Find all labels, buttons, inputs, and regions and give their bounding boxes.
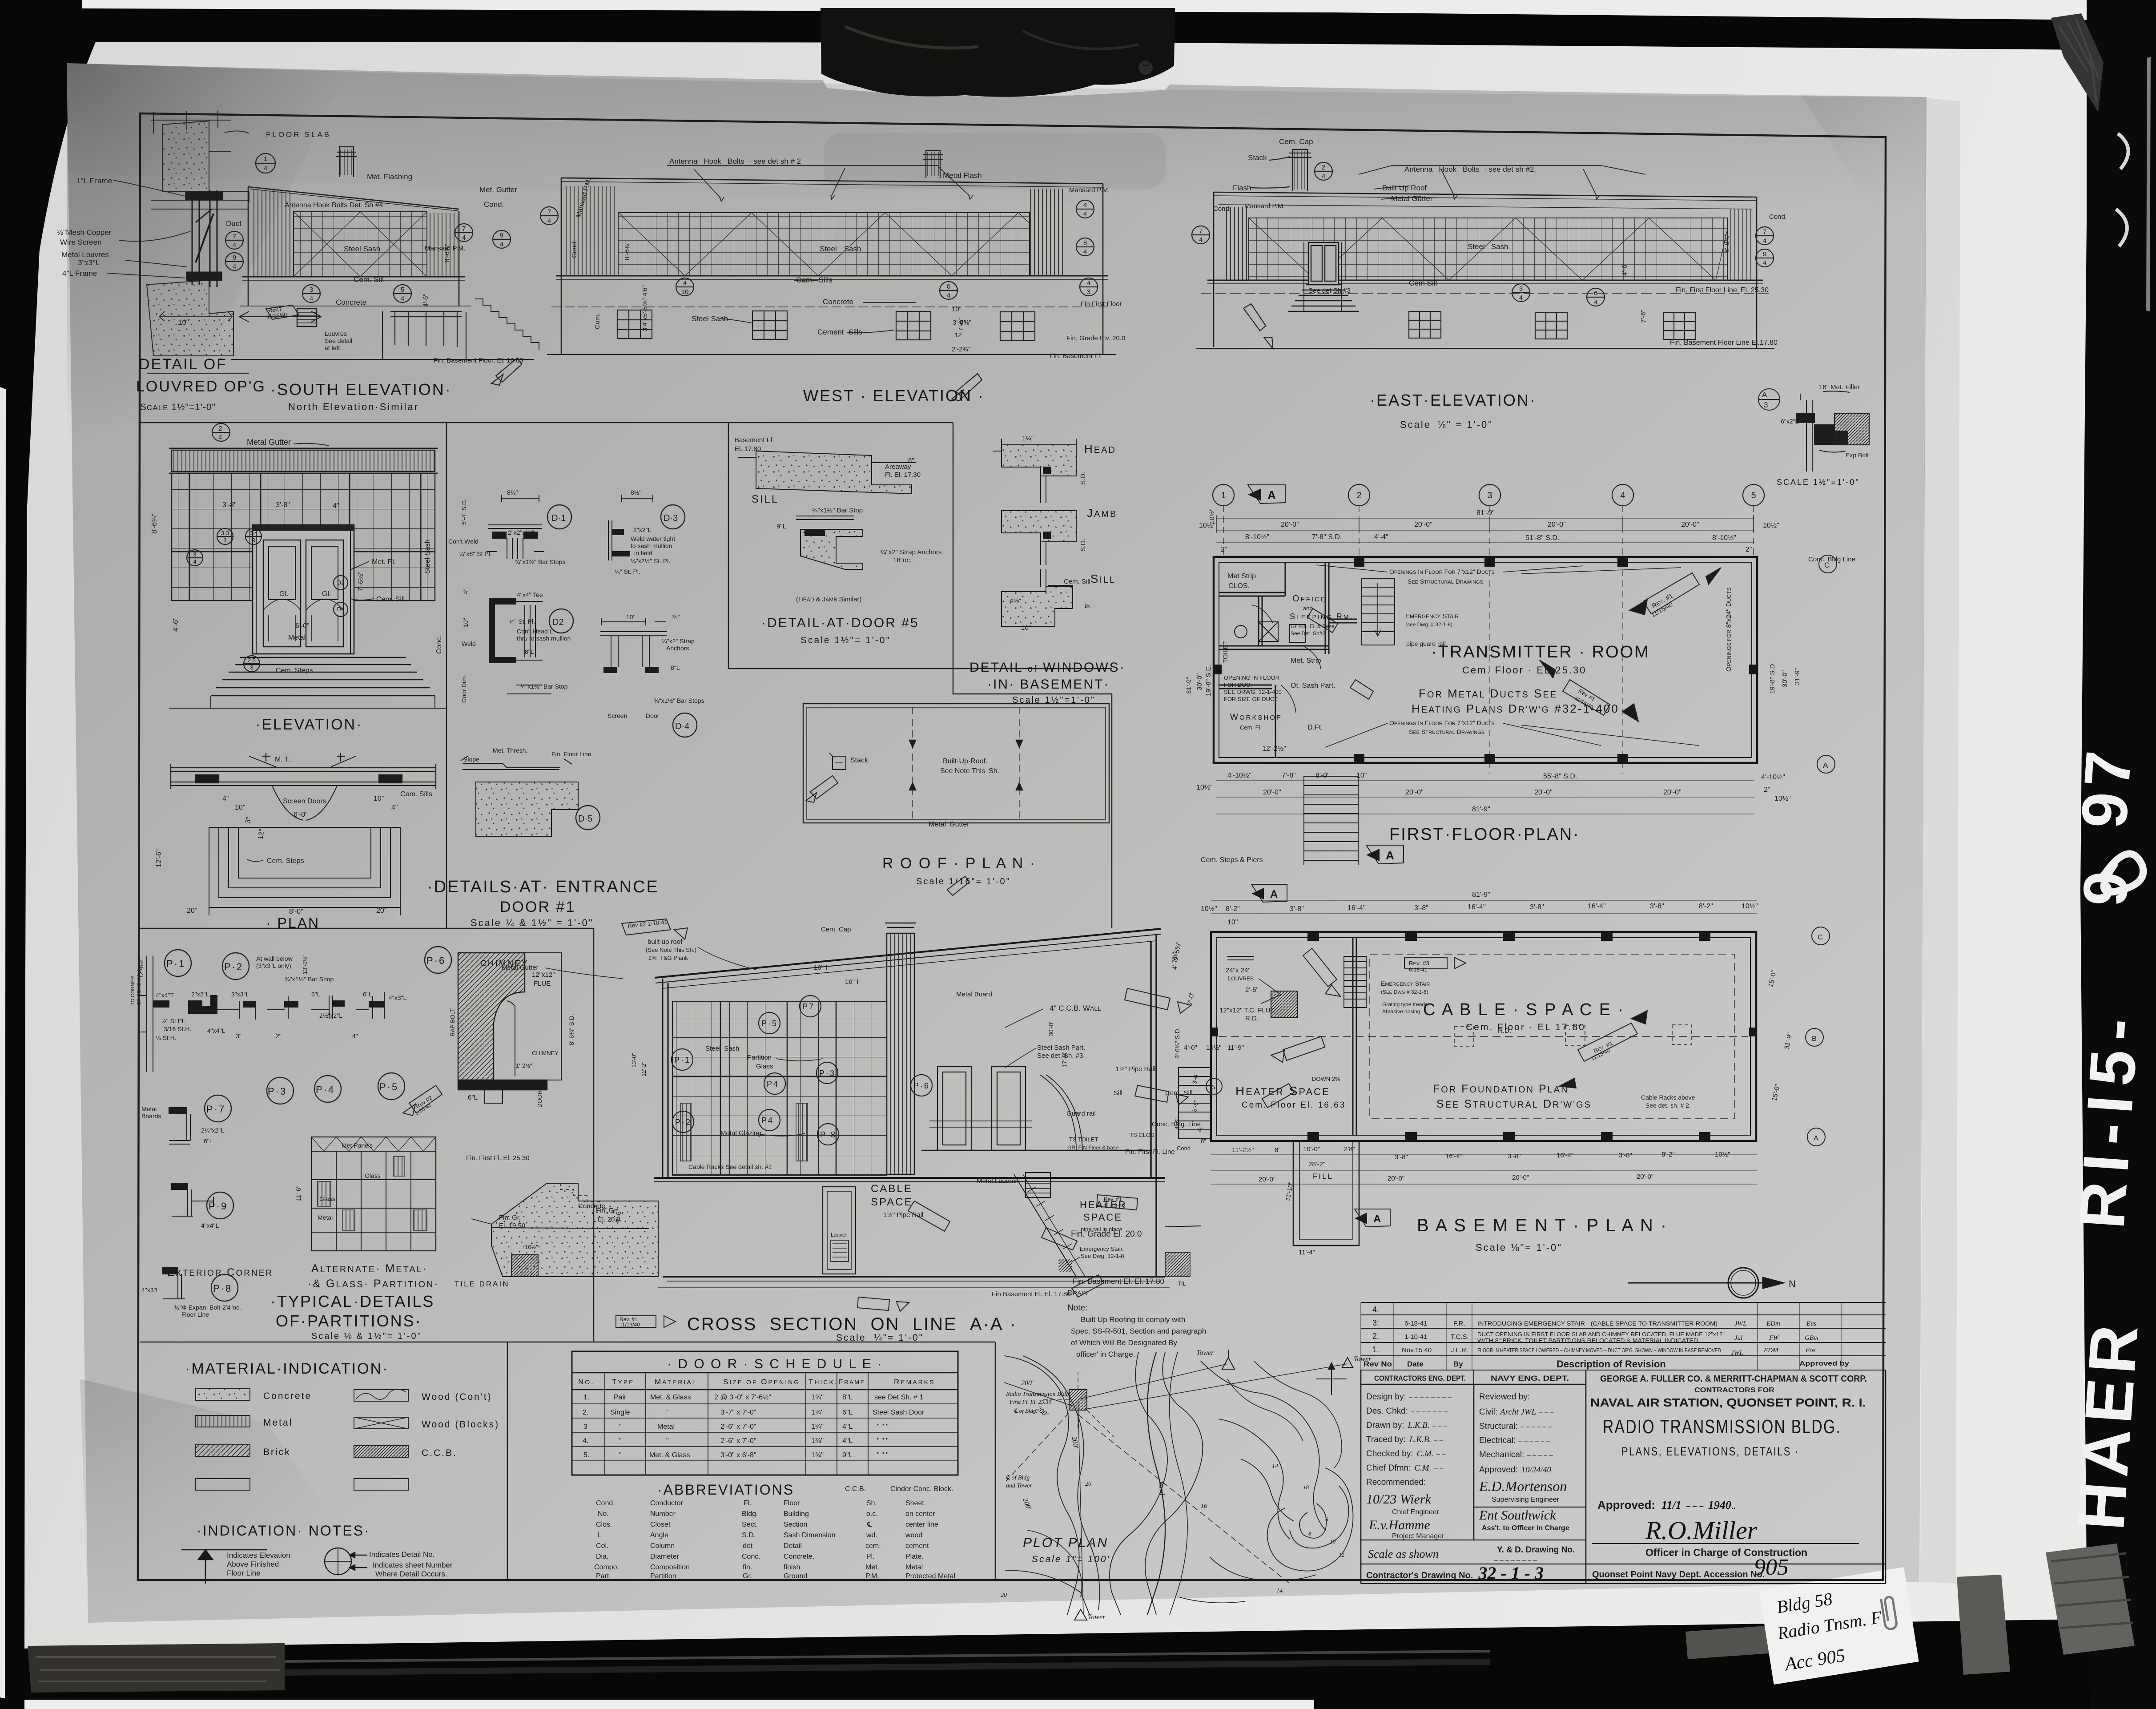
svg-text:4": 4" — [333, 502, 339, 510]
svg-text:det: det — [743, 1542, 753, 1550]
svg-text:3.4: 3.4 — [249, 530, 257, 536]
svg-text:J.L.R.: J.L.R. — [1451, 1346, 1468, 1354]
svg-text:Indicates Detail No.: Indicates Detail No. — [369, 1550, 434, 1559]
svg-text:200': 200' — [1021, 1379, 1034, 1387]
svg-text:P·1: P·1 — [674, 1056, 691, 1064]
svg-text:Metal: Metal — [263, 1418, 293, 1428]
svg-text:Cem. Steps & Piers: Cem. Steps & Piers — [1201, 856, 1263, 864]
svg-text:Cable Racks above: Cable Racks above — [1641, 1094, 1695, 1101]
svg-text:Design by:– – – – – – – –: Design by:– – – – – – – – — [1366, 1392, 1452, 1402]
svg-text:19'-8" S.D.: 19'-8" S.D. — [1769, 662, 1776, 694]
svg-text:D·3: D·3 — [664, 513, 678, 523]
svg-text:El. 17.80: El. 17.80 — [735, 445, 761, 453]
svg-text:Cable Racks See detail sh. #2: Cable Racks See detail sh. #2 — [688, 1163, 772, 1170]
svg-text:Recommended:: Recommended: — [1366, 1478, 1426, 1487]
svg-text:Fin. Basement Floor Line El.17: Fin. Basement Floor Line El.17.80 — [1670, 339, 1778, 347]
svg-text:3'-0" x 6'-8": 3'-0" x 6'-8" — [720, 1451, 756, 1459]
svg-text:D·5: D·5 — [578, 814, 592, 824]
svg-text:¼" St. Pl.: ¼" St. Pl. — [615, 568, 640, 575]
svg-text:TS TOILET: TS TOILET — [1069, 1136, 1098, 1143]
svg-text:24"x 24": 24"x 24" — [1226, 967, 1251, 974]
svg-text:8'-2": 8'-2" — [1226, 905, 1240, 913]
svg-text:CONTRACTORS FOR: CONTRACTORS FOR — [1694, 1387, 1774, 1394]
svg-text:12"x12": 12"x12" — [532, 971, 555, 979]
svg-text:2": 2" — [1764, 786, 1770, 794]
svg-text:12: 12 — [954, 331, 962, 339]
svg-text:GBm: GBm — [1805, 1334, 1818, 1342]
svg-text:S.D.: S.D. — [1079, 472, 1087, 485]
svg-text:Fin. First Floor LineEl. 25.30: Fin. First Floor LineEl. 25.30 — [1676, 286, 1769, 294]
svg-text:" " ": " " " — [877, 1451, 889, 1459]
svg-text:Wood (Con't): Wood (Con't) — [422, 1392, 492, 1402]
svg-text:GEORGE A. FULLER CO. & MERRITT: GEORGE A. FULLER CO. & MERRITT-CHAPMAN &… — [1600, 1374, 1867, 1384]
svg-text:C.C.B.: C.C.B. — [422, 1448, 457, 1458]
svg-text:Eos: Eos — [1805, 1347, 1816, 1354]
svg-text:4": 4" — [222, 795, 229, 802]
svg-text:P·4: P·4 — [316, 1084, 335, 1095]
svg-text:Met Strip: Met Strip — [1227, 572, 1256, 580]
svg-text:11-13-40: 11-13-40 — [1104, 1202, 1125, 1209]
svg-text:2.: 2. — [1372, 1332, 1379, 1341]
svg-text:Cem. Cap: Cem. Cap — [1279, 137, 1313, 146]
svg-text:16" Met. Filler: 16" Met. Filler — [1819, 383, 1860, 391]
svg-text:First Fl. El. 25.30: First Fl. El. 25.30 — [1009, 1399, 1051, 1405]
svg-text:Abrasive nosing: Abrasive nosing — [1382, 1008, 1420, 1015]
svg-text:4": 4" — [352, 1032, 358, 1040]
svg-text:3'-8": 3'-8" — [1414, 904, 1428, 912]
svg-text:4: 4 — [1763, 237, 1766, 245]
svg-text:wood: wood — [905, 1532, 922, 1539]
svg-text:Metal: Metal — [288, 634, 306, 641]
svg-text:to sash mullion: to sash mullion — [631, 542, 672, 549]
svg-text:El. 19.50: El. 19.50 — [499, 1222, 525, 1229]
svg-text:P·7: P·7 — [206, 1104, 225, 1115]
svg-text:6": 6" — [908, 457, 914, 464]
svg-text:Gr. Fin. El. & Base: Gr. Fin. El. & Base — [1291, 623, 1335, 629]
svg-text:D2: D2 — [552, 617, 564, 627]
svg-text:4'-0": 4'-0" — [1184, 1044, 1197, 1052]
svg-text:℄: ℄ — [867, 1521, 872, 1528]
svg-text:thru to sash mullion: thru to sash mullion — [517, 635, 571, 642]
svg-text:Built·Up·Roof.: Built·Up·Roof. — [943, 758, 987, 765]
svg-text:4: 4 — [947, 292, 950, 299]
svg-text:1¾": 1¾" — [811, 1437, 824, 1445]
svg-text:¼"x8" St Pl.: ¼"x8" St Pl. — [459, 550, 492, 557]
svg-text:S.D.: S.D. — [1079, 539, 1087, 552]
svg-text:REMARKS: REMARKS — [894, 1378, 935, 1386]
svg-text:8"L: 8"L — [842, 1394, 853, 1401]
svg-text:Cem. Steps: Cem. Steps — [276, 667, 313, 674]
svg-text:19'-8" S.E.: 19'-8" S.E. — [1205, 665, 1212, 696]
svg-text:Supervising Engineer: Supervising Engineer — [1492, 1496, 1560, 1503]
svg-text:20: 20 — [1001, 1592, 1007, 1599]
svg-text:(3"x3"L only): (3"x3"L only) — [256, 962, 291, 969]
svg-text:Pl.: Pl. — [866, 1553, 875, 1560]
svg-text:Metal Board: Metal Board — [956, 991, 992, 998]
svg-text:3"x3"L: 3"x3"L — [78, 258, 100, 267]
svg-text:Glass: Glass — [756, 1063, 773, 1070]
svg-text:Con't Head L: Con't Head L — [517, 628, 553, 635]
svg-text:o.c.: o.c. — [866, 1510, 878, 1518]
svg-text:4"L: 4"L — [842, 1423, 853, 1431]
svg-text:Metal Glazing: Metal Glazing — [720, 1129, 761, 1137]
svg-text:Metal Louvres: Metal Louvres — [61, 250, 109, 259]
svg-text:2": 2" — [276, 1032, 282, 1040]
svg-text:· PLAN: · PLAN — [266, 915, 320, 931]
svg-text:16'-4": 16'-4" — [1445, 1153, 1462, 1160]
svg-text:8: 8 — [1083, 239, 1087, 247]
svg-text:OFFICE: OFFICE — [1292, 594, 1327, 604]
svg-text:Met. Pl.: Met. Pl. — [372, 558, 396, 566]
svg-text:FLOOR IN HEATER SPACE LOWERED: FLOOR IN HEATER SPACE LOWERED – CHIMNEY … — [1477, 1347, 1721, 1354]
svg-text:3: 3 — [1764, 401, 1768, 409]
svg-text:P·6: P·6 — [426, 955, 446, 966]
svg-text:12'-2": 12'-2" — [640, 1061, 647, 1076]
svg-text:officer' in Charge.: officer' in Charge. — [1076, 1350, 1135, 1358]
svg-text:· D O O R · S C H E D U L E ·: · D O O R · S C H E D U L E · — [667, 1357, 883, 1371]
svg-text:P·9: P·9 — [209, 1201, 228, 1212]
svg-text:Diameter: Diameter — [650, 1553, 680, 1560]
svg-text:20'-0": 20'-0" — [1681, 521, 1699, 528]
svg-text:Guard rail: Guard rail — [1066, 1110, 1096, 1117]
svg-text:¾"x1½" Bar Stops: ¾"x1½" Bar Stops — [654, 697, 704, 704]
svg-text:cement: cement — [905, 1542, 929, 1550]
svg-text:7'-6": 7'-6" — [957, 318, 965, 331]
svg-text:Protected Metal: Protected Metal — [905, 1572, 955, 1580]
svg-text:P·3: P·3 — [819, 1069, 836, 1078]
svg-text:¾"x1½" Bar Stop: ¾"x1½" Bar Stop — [520, 683, 568, 690]
svg-text:2"x2"x¼"L: 2"x2"x¼"L — [508, 529, 536, 536]
svg-text:Cem. Steps: Cem. Steps — [267, 857, 304, 865]
svg-text:¾"x1⅜" Bar Stops: ¾"x1⅜" Bar Stops — [515, 558, 565, 565]
svg-text:3: 3 — [1519, 285, 1523, 293]
svg-text:4: 4 — [1083, 210, 1087, 218]
svg-text:28'-2": 28'-2" — [1308, 1161, 1325, 1168]
svg-text:2'-6" x 7'-0": 2'-6" x 7'-0" — [720, 1423, 756, 1431]
svg-text:Sh.: Sh. — [866, 1499, 877, 1507]
svg-text:Number: Number — [650, 1510, 676, 1518]
svg-text:Des. Chkd:– – – – – – –: Des. Chkd:– – – – – – – — [1366, 1407, 1448, 1416]
svg-text:No.: No. — [598, 1510, 609, 1518]
svg-text:NAVAL AIR STATION, QUONSET POI: NAVAL AIR STATION, QUONSET POINT, R. I. — [1590, 1396, 1866, 1409]
svg-text:Door Dim.: Door Dim. — [460, 675, 467, 703]
svg-text:20'-0": 20'-0" — [1534, 789, 1553, 796]
svg-text:4"x4"T: 4"x4"T — [156, 992, 174, 999]
svg-text:1.: 1. — [1372, 1345, 1379, 1354]
svg-text:TO CORNER: TO CORNER — [130, 976, 136, 1005]
svg-text:2: 2 — [1322, 164, 1325, 171]
svg-text:INTRODUCING EMERGENCY STAIR -: INTRODUCING EMERGENCY STAIR - (CABLE SPA… — [1477, 1320, 1718, 1327]
svg-text:Antenna Hook Bolts Det. Sh #4: Antenna Hook Bolts Det. Sh #4 — [285, 202, 383, 209]
svg-text:4: 4 — [218, 434, 222, 441]
svg-text:4: 4 — [547, 217, 551, 225]
svg-text:4: 4 — [193, 558, 196, 565]
svg-text:Tower: Tower — [1196, 1349, 1214, 1357]
svg-text:RADIO TRANSMISSION BLDG.: RADIO TRANSMISSION BLDG. — [1603, 1416, 1841, 1438]
svg-text:3'-8": 3'-8" — [276, 501, 290, 509]
svg-text:3'-8": 3'-8" — [1650, 903, 1664, 910]
svg-text:9: 9 — [233, 254, 236, 262]
svg-text:Metal Gutter: Metal Gutter — [247, 438, 291, 447]
svg-text:10/23 Wierk: 10/23 Wierk — [1366, 1492, 1431, 1507]
svg-text:Indicates sheet Number: Indicates sheet Number — [373, 1561, 453, 1569]
svg-text:DETAIL OF: DETAIL OF — [139, 356, 227, 373]
svg-text:Sect.: Sect. — [742, 1521, 758, 1528]
svg-text:Fin. Basement El. El. 17.80: Fin. Basement El. El. 17.80 — [1073, 1277, 1164, 1286]
svg-text:12'-6": 12'-6" — [155, 849, 163, 867]
svg-text:DOOR: DOOR — [536, 1090, 543, 1108]
svg-text:℄ of Bldg.: ℄ of Bldg. — [1014, 1407, 1038, 1414]
svg-text:7'-6½": 7'-6½" — [357, 572, 365, 592]
svg-text:": " — [619, 1437, 622, 1445]
svg-text:Met. & Glass: Met. & Glass — [650, 1394, 691, 1401]
svg-text:Description of Revision: Description of Revision — [1557, 1358, 1666, 1370]
svg-text:20'-0": 20'-0" — [1512, 1174, 1529, 1181]
svg-text:": " — [619, 1423, 622, 1431]
svg-text:M. T.: M. T. — [275, 756, 290, 763]
svg-text:Cem Sill: Cem Sill — [1409, 279, 1437, 287]
svg-text:·SOUTH ELEVATION·: ·SOUTH ELEVATION· — [270, 380, 452, 399]
svg-text:R.O.Miller: R.O.Miller — [1645, 1516, 1758, 1545]
svg-text:12"x12" T.C. FLUE: 12"x12" T.C. FLUE — [1219, 1007, 1275, 1014]
svg-text:Cem. Floor El. 16.63: Cem. Floor El. 16.63 — [1242, 1100, 1346, 1110]
svg-text:6"L: 6"L — [363, 991, 372, 998]
svg-text:Cond.: Cond. — [571, 240, 578, 258]
svg-text:JWL: JWL — [1734, 1320, 1747, 1327]
svg-text:3/16 St.H.: 3/16 St.H. — [164, 1025, 191, 1032]
svg-text:3": 3" — [244, 816, 253, 824]
svg-text:Flash: Flash — [1233, 184, 1251, 192]
svg-text:TILE DRAIN: TILE DRAIN — [455, 1280, 510, 1288]
svg-text:Conc. Bldg. Line: Conc. Bldg. Line — [1152, 1121, 1201, 1128]
svg-text:Sill: Sill — [1114, 1089, 1122, 1097]
svg-text:10": 10" — [235, 804, 245, 811]
svg-text:EMERGENCY STAIR: EMERGENCY STAIR — [1405, 613, 1459, 620]
svg-text:A: A — [1386, 849, 1396, 862]
svg-text:Plate.: Plate. — [905, 1553, 924, 1560]
svg-text:Cem. Sill: Cem. Sill — [376, 596, 405, 603]
svg-text:Metal Gutter: Metal Gutter — [1391, 194, 1433, 203]
svg-text:Con't Weld: Con't Weld — [448, 538, 479, 545]
svg-text:Basement Fl.: Basement Fl. — [735, 436, 774, 444]
svg-text:·IN· BASEMENT·: ·IN· BASEMENT· — [987, 677, 1110, 692]
svg-text:11'-2½": 11'-2½" — [1232, 1146, 1254, 1154]
svg-text:DOOR #1: DOOR #1 — [500, 899, 575, 915]
svg-text:2"x2"L: 2"x2"L — [191, 991, 209, 998]
svg-text:Scale ⅛ & 1½"= 1'-0": Scale ⅛ & 1½"= 1'-0" — [311, 1331, 422, 1341]
svg-text:D.Ft.: D.Ft. — [1307, 724, 1323, 731]
svg-text:MATERIAL: MATERIAL — [655, 1378, 697, 1386]
svg-text:·& GLASS· PARTITION·: ·& GLASS· PARTITION· — [308, 1278, 439, 1290]
svg-text:1¾": 1¾" — [811, 1409, 824, 1416]
svg-text:Wire Screen: Wire Screen — [60, 238, 102, 246]
svg-text:14: 14 — [1272, 1463, 1278, 1470]
svg-text:2"x2"L: 2"x2"L — [633, 526, 652, 533]
svg-text:SCALE 1½"=1'-0": SCALE 1½"=1'-0" — [140, 402, 216, 412]
svg-text:16'-4": 16'-4" — [1468, 903, 1486, 911]
svg-text:": " — [666, 1437, 669, 1445]
svg-text:10": 10" — [1021, 624, 1031, 632]
svg-text:4: 4 — [683, 279, 687, 287]
svg-text:4"L: 4"L — [842, 1437, 853, 1445]
svg-text:C: C — [1824, 561, 1830, 569]
svg-text:Reviewed by:: Reviewed by: — [1479, 1392, 1530, 1402]
svg-text:Concrete: Concrete — [578, 1202, 605, 1210]
svg-text:20'-0": 20'-0" — [1281, 521, 1299, 528]
svg-text:10½": 10½" — [1201, 905, 1217, 913]
svg-text:3'-8": 3'-8" — [222, 501, 237, 509]
svg-text:built up roof: built up roof — [648, 938, 683, 946]
svg-text:4": 4" — [462, 588, 469, 594]
svg-text:4'-6": 4'-6" — [172, 617, 180, 632]
svg-text:Floor Line: Floor Line — [227, 1569, 261, 1577]
svg-text:¼"x2" Strap Anchors: ¼"x2" Strap Anchors — [881, 548, 941, 556]
svg-text:Gl.: Gl. — [279, 590, 288, 598]
svg-text:HAER: HAER — [2063, 1318, 2152, 1533]
svg-text:7'-8" S.D.: 7'-8" S.D. — [1312, 533, 1342, 541]
svg-text:Concrete: Concrete — [823, 298, 853, 306]
svg-text:20'-0": 20'-0" — [1663, 789, 1681, 796]
svg-text:20'-0": 20'-0" — [1405, 789, 1424, 796]
svg-text:8'-10½": 8'-10½" — [1712, 534, 1736, 542]
svg-text:4'-6": 4'-6" — [1621, 262, 1629, 276]
svg-text:10½": 10½" — [1196, 784, 1213, 791]
svg-text:Compo.: Compo. — [594, 1564, 619, 1571]
svg-text:B: B — [1812, 1035, 1817, 1043]
svg-text:Approved:10/24/40: Approved:10/24/40 — [1479, 1465, 1552, 1475]
svg-text:Screen Doors: Screen Doors — [283, 798, 326, 805]
svg-text:Col.: Col. — [596, 1542, 608, 1550]
svg-text:Scale ⅛"= 1'-0": Scale ⅛"= 1'-0" — [1476, 1242, 1562, 1253]
svg-text:Conc.: Conc. — [742, 1553, 760, 1560]
svg-text:Steel Sash: Steel Sash — [424, 540, 431, 574]
svg-text:FLOORSLAB: FLOORSLAB — [266, 130, 329, 139]
svg-text:See detail: See detail — [325, 337, 352, 344]
svg-text:16'-4": 16'-4" — [1588, 903, 1606, 910]
svg-text:4: 4 — [1594, 298, 1597, 306]
svg-text:Weld water tight: Weld water tight — [631, 535, 675, 542]
svg-text:7: 7 — [547, 208, 551, 216]
svg-text:P·5: P·5 — [761, 1019, 778, 1028]
svg-text:8½": 8½" — [507, 489, 518, 496]
svg-text:Built Up Roofing to comply wit: Built Up Roofing to comply with — [1081, 1315, 1185, 1324]
svg-text:6"x2"L: 6"x2"L — [1781, 418, 1799, 425]
svg-text:LOUVRES: LOUVRES — [1227, 975, 1254, 982]
svg-text:": " — [619, 1451, 622, 1459]
svg-text:See Dwg. 32-1-8: See Dwg. 32-1-8 — [1081, 1253, 1124, 1259]
svg-text:P·2: P·2 — [224, 961, 243, 972]
svg-text:2'-2¾": 2'-2¾" — [952, 346, 970, 353]
svg-text:Anchors: Anchors — [666, 645, 689, 652]
svg-text:DOWN 2%: DOWN 2% — [1312, 1076, 1340, 1082]
svg-text:10": 10" — [462, 618, 469, 627]
svg-text:Scale ¼ & 1½" = 1'-0": Scale ¼ & 1½" = 1'-0" — [471, 917, 594, 928]
svg-text:17'-8": 17'-8" — [1061, 1052, 1068, 1068]
svg-text:16'-4": 16'-4" — [1347, 904, 1366, 912]
svg-text:AntennaHookBolts· see det sh #: AntennaHookBolts· see det sh #2. — [1404, 165, 1536, 173]
svg-text:See Note ThisSh.: See Note ThisSh. — [940, 767, 999, 775]
svg-text:Met. Strip: Met. Strip — [1291, 657, 1321, 665]
svg-text:D4: D4 — [337, 606, 345, 613]
svg-text:30'-0": 30'-0" — [1196, 673, 1203, 690]
svg-text:·TRANSMITTER · ROOM: ·TRANSMITTER · ROOM — [1431, 643, 1650, 661]
svg-text:P·8: P·8 — [213, 1283, 232, 1294]
svg-text:4: 4 — [500, 241, 503, 248]
svg-text:CementSills: CementSills — [817, 328, 862, 336]
svg-text:Fl.: Fl. — [744, 1499, 752, 1507]
svg-text:Metal: Metal — [905, 1564, 923, 1571]
svg-text:16'-4": 16'-4" — [1557, 1152, 1573, 1159]
svg-text:10'-0": 10'-0" — [1303, 1145, 1320, 1153]
svg-text:finish: finish — [784, 1564, 800, 1571]
svg-text:Cinder Conc. Block.: Cinder Conc. Block. — [890, 1485, 953, 1493]
svg-text:cem.: cem. — [865, 1542, 881, 1550]
svg-text:30'-0": 30'-0" — [1781, 670, 1789, 687]
svg-text:Note:: Note: — [1067, 1303, 1087, 1313]
svg-text:½"Mesh Copper: ½"Mesh Copper — [57, 228, 112, 237]
svg-text:Louver: Louver — [831, 1232, 847, 1238]
svg-text:Spec. SS-R-501, Section and pa: Spec. SS-R-501, Section and paragraph — [1071, 1327, 1206, 1335]
svg-text:Areaway: Areaway — [885, 463, 911, 471]
svg-text:Gl.: Gl. — [322, 590, 331, 598]
svg-text:7'-8": 7'-8" — [1282, 772, 1296, 779]
svg-text:Cond.: Cond. — [484, 200, 504, 209]
svg-text:GR. FIN Floor & base: GR. FIN Floor & base — [1067, 1145, 1119, 1151]
svg-text:Quonset Point Navy Dept. Acces: Quonset Point Navy Dept. Accession No. — [1592, 1570, 1765, 1580]
svg-text:3'4"x5'-5⅝" 4'6": 3'4"x5'-5⅝" 4'6" — [641, 285, 649, 331]
svg-text:Sash Dimension: Sash Dimension — [784, 1532, 836, 1539]
svg-text:℄ of Bldg: ℄ of Bldg — [1006, 1475, 1030, 1481]
svg-text:Scale ¼"= 1'-0": Scale ¼"= 1'-0" — [836, 1333, 924, 1343]
svg-text:P4: P4 — [767, 1080, 779, 1088]
svg-text:Met. Thresh.: Met. Thresh. — [493, 747, 527, 754]
svg-text:5: 5 — [401, 286, 404, 294]
svg-text:4.: 4. — [583, 1437, 588, 1445]
svg-text:": " — [666, 1409, 669, 1416]
svg-text:" " ": " " " — [877, 1423, 889, 1431]
svg-text:4": 4" — [391, 804, 398, 811]
svg-text:Door: Door — [646, 712, 660, 719]
svg-text:F.R.: F.R. — [1453, 1320, 1465, 1327]
svg-text:Partition: Partition — [747, 1054, 772, 1061]
svg-text:(See Note This Sh.): (See Note This Sh.) — [646, 947, 696, 953]
svg-text:·TYPICAL·DETAILS: ·TYPICAL·DETAILS — [270, 1292, 434, 1310]
svg-text:6"L: 6"L — [204, 1137, 213, 1145]
svg-text:Exp Bolt: Exp Bolt — [1846, 451, 1869, 459]
svg-text:4: 4 — [401, 295, 404, 302]
svg-text:20'-0": 20'-0" — [1414, 521, 1432, 528]
svg-text:7'-6": 7'-6" — [615, 1209, 623, 1222]
svg-text:Approved:11/1– – –1940..: Approved:11/1– – –1940.. — [1597, 1498, 1736, 1511]
svg-text:Scale 1"= 100': Scale 1"= 100' — [1032, 1554, 1110, 1564]
svg-text:3'-8": 3'-8" — [1290, 905, 1304, 913]
svg-text:2'8": 2'8" — [1344, 1145, 1355, 1153]
svg-text:EDm: EDm — [1766, 1320, 1780, 1327]
svg-text:⅛" St Pl.: ⅛" St Pl. — [161, 1017, 185, 1024]
svg-text:20'-0": 20'-0" — [1263, 789, 1281, 796]
svg-text:6'-0": 6'-0" — [294, 811, 308, 818]
svg-text:3.3: 3.3 — [221, 530, 229, 536]
svg-text:Met. Gutter: Met. Gutter — [479, 185, 517, 194]
svg-text:Fin. First Fl. Line: Fin. First Fl. Line — [1125, 1148, 1175, 1156]
svg-text:20'-0": 20'-0" — [1637, 1173, 1653, 1181]
svg-text:Cem. Fl.: Cem. Fl. — [1240, 724, 1262, 731]
svg-text:Ent Southwick: Ent Southwick — [1479, 1508, 1556, 1523]
svg-text:Dia.: Dia. — [596, 1553, 608, 1560]
svg-text:Ass't. to Officer in Charge: Ass't. to Officer in Charge — [1482, 1524, 1569, 1532]
svg-text:2½"x2"L: 2½"x2"L — [319, 1012, 342, 1019]
svg-text:10" I: 10" I — [814, 964, 827, 971]
